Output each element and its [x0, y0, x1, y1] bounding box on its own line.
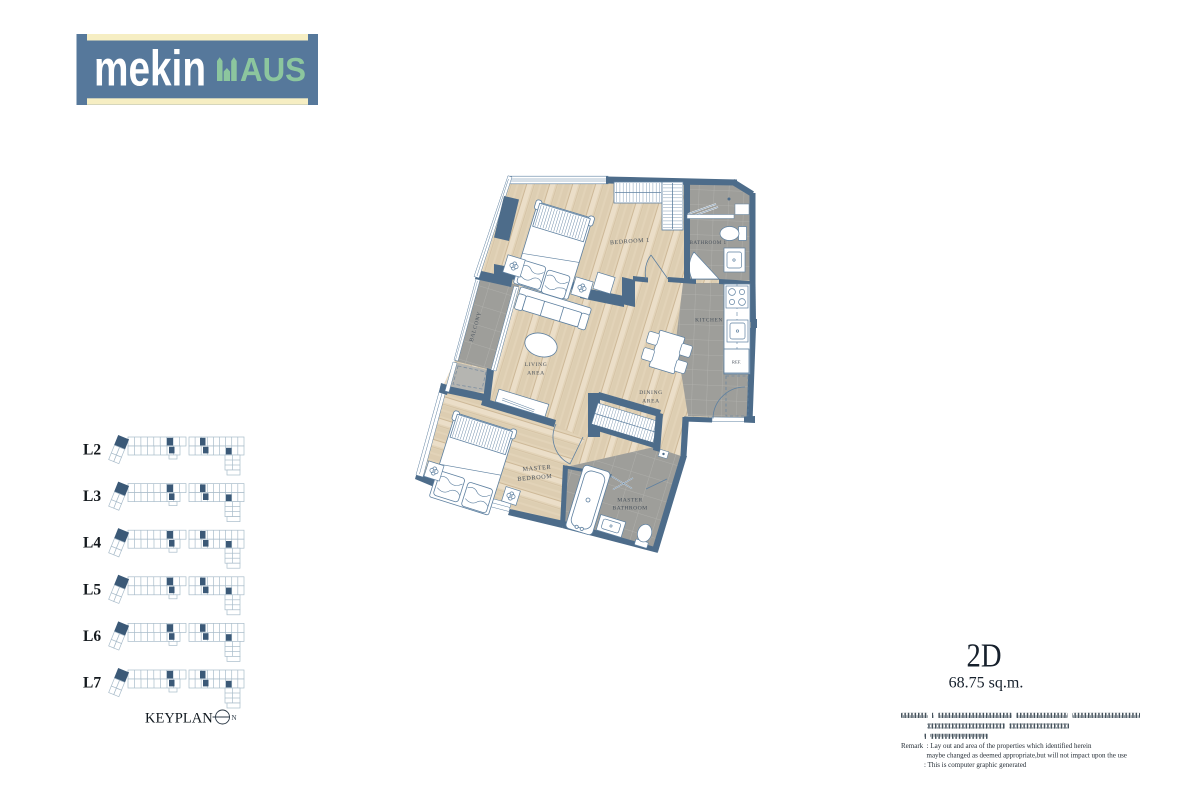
svg-text:mekin: mekin — [94, 40, 206, 96]
svg-text:68.75 sq.m.: 68.75 sq.m. — [949, 675, 1024, 692]
svg-text:: This is computer graphic gen: : This is computer graphic generated — [924, 761, 1027, 769]
svg-text:Remark : Lay out and area of: Remark : Lay out and area of the propert… — [901, 742, 1092, 750]
svg-text:2D: 2D — [967, 638, 1002, 675]
svg-text:AREA: AREA — [527, 371, 545, 377]
svg-text:L5: L5 — [83, 581, 101, 598]
svg-text:REF.: REF. — [732, 360, 741, 365]
svg-text:KITCHEN: KITCHEN — [695, 318, 723, 324]
svg-text:DINING: DINING — [639, 390, 662, 396]
svg-text:L3: L3 — [83, 488, 101, 505]
svg-text:maybe changed as deemed approp: maybe changed as deemed appropriate,but … — [927, 752, 1127, 760]
svg-text:L2: L2 — [83, 442, 101, 459]
svg-text:N: N — [232, 714, 237, 722]
svg-text:LIVING: LIVING — [525, 362, 548, 368]
svg-text:BATHROOM: BATHROOM — [612, 506, 647, 512]
svg-text:BATHROOM 1: BATHROOM 1 — [689, 240, 726, 246]
svg-text:L7: L7 — [83, 675, 101, 692]
svg-text:AUS: AUS — [240, 51, 306, 88]
svg-text:L4: L4 — [83, 535, 101, 552]
svg-text:L6: L6 — [83, 628, 101, 645]
svg-text:KEYPLAN: KEYPLAN — [145, 711, 213, 727]
svg-text:MASTER: MASTER — [617, 498, 642, 504]
svg-text:AREA: AREA — [642, 399, 660, 405]
